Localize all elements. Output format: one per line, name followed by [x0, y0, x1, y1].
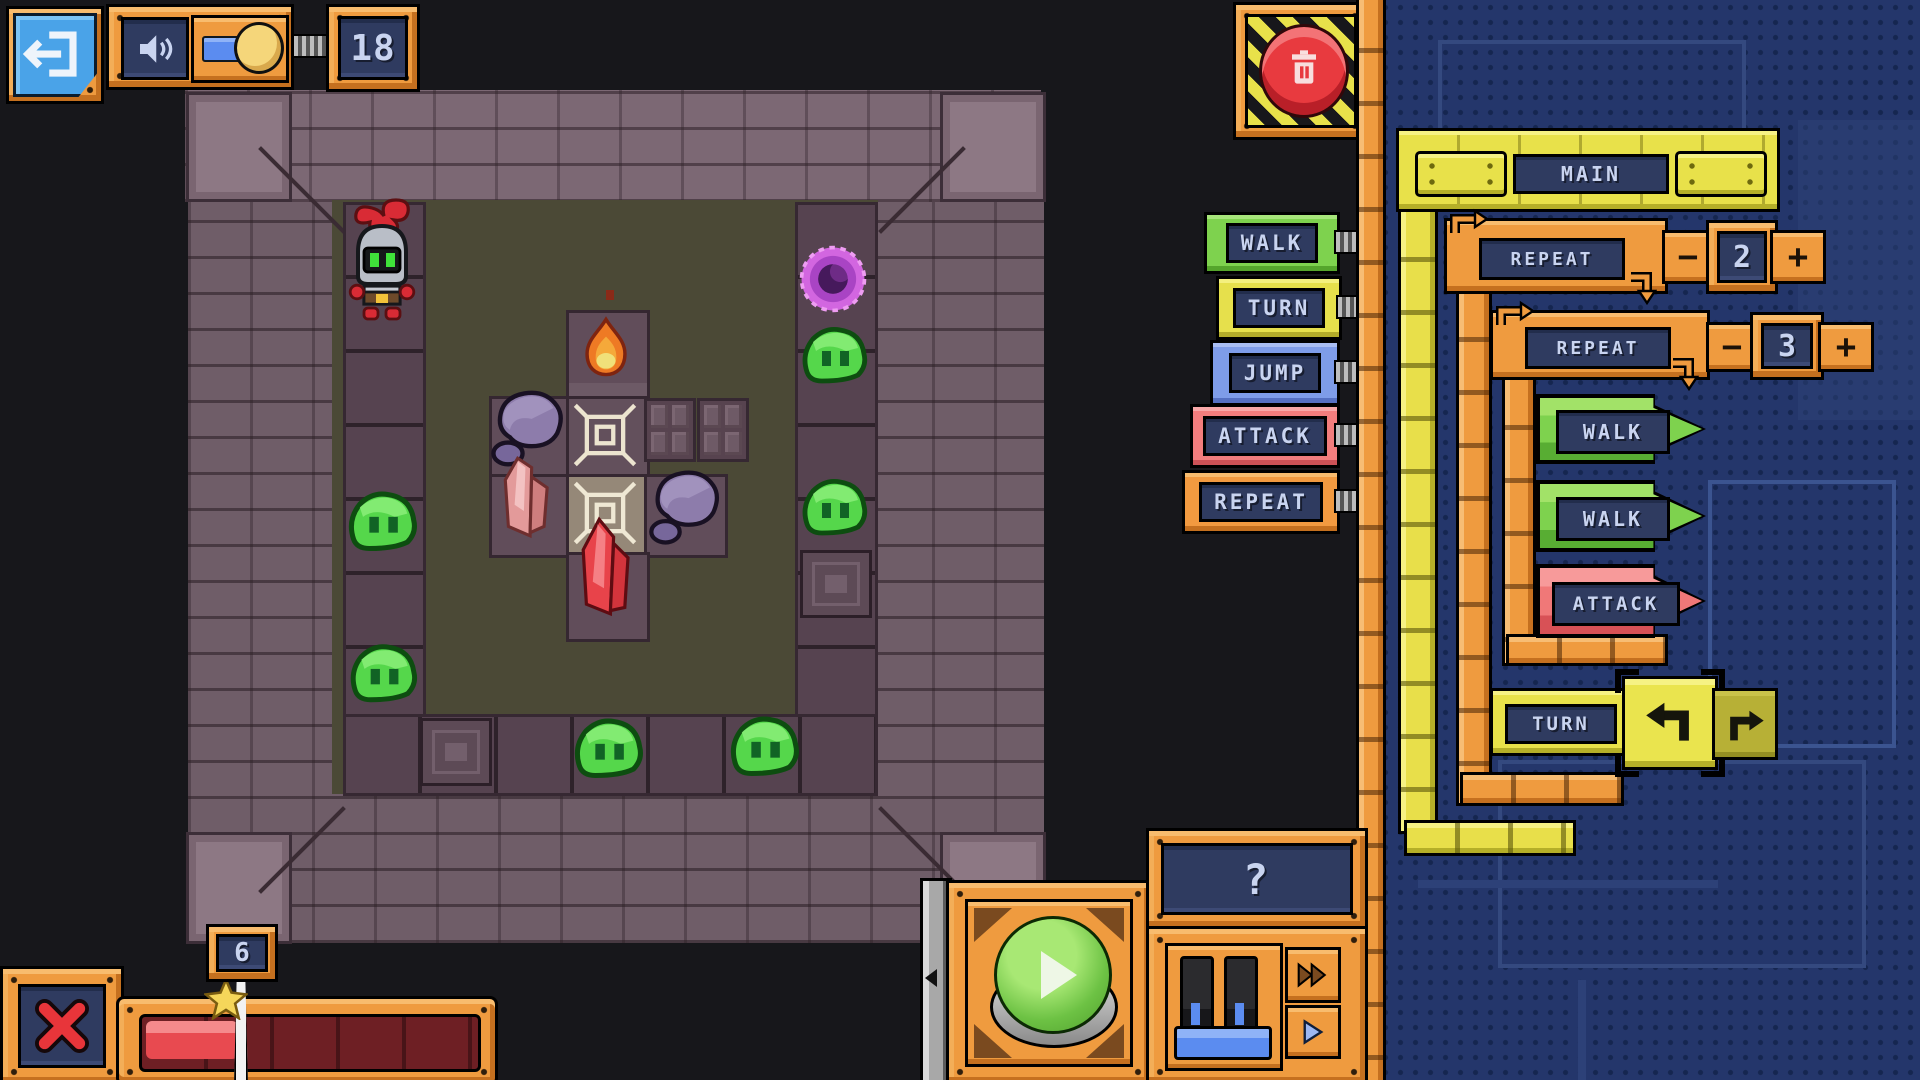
main-tab — [1675, 151, 1767, 197]
sound-panel — [106, 4, 294, 90]
speed-lever-base — [1174, 1026, 1272, 1060]
repeat-inner-plus-button[interactable]: + — [1818, 322, 1874, 372]
slime-sprite — [798, 320, 870, 388]
corner-pillar — [186, 92, 292, 202]
palette-repeat-label: REPEAT — [1199, 482, 1323, 522]
slime-sprite — [344, 486, 420, 554]
flame-icon — [580, 316, 632, 378]
main-block-pipe — [1398, 206, 1438, 834]
selection-bracket — [1615, 753, 1639, 777]
fast-forward-button[interactable] — [1285, 947, 1341, 1003]
selection-bracket — [1615, 669, 1639, 693]
repeat-outer-count: 2 — [1733, 240, 1751, 275]
main-tab — [1415, 151, 1507, 197]
turn-left-arrow-icon — [1642, 695, 1698, 747]
repeat-outer-block[interactable]: REPEAT — [1444, 218, 1668, 294]
platform-tile — [644, 398, 696, 462]
palette-walk-label: WALK — [1226, 223, 1319, 263]
exit-door-icon — [16, 16, 92, 92]
palette-repeat-button[interactable]: REPEAT — [1182, 470, 1340, 534]
main-block-pipe-end — [1404, 820, 1576, 856]
palette-turn-label: TURN — [1233, 288, 1326, 328]
speaker-icon — [121, 17, 189, 80]
repeat-outer-label: REPEAT — [1510, 249, 1593, 270]
loop-arrow-icon — [1449, 207, 1489, 235]
block-counter-panel: 18 — [326, 4, 420, 92]
turn-right-button[interactable] — [1712, 688, 1778, 760]
speed-lever[interactable] — [1224, 956, 1258, 1030]
portal-sprite — [796, 240, 870, 318]
program-walk-block-2[interactable]: WALK — [1536, 480, 1706, 552]
step-button[interactable] — [1285, 1005, 1341, 1059]
program-walk-block-1[interactable]: WALK — [1536, 394, 1706, 464]
trash-icon — [1284, 47, 1324, 91]
slime-sprite — [798, 472, 870, 540]
x-icon — [35, 999, 89, 1053]
progress-star-icon — [204, 978, 248, 1020]
hud-connector — [292, 34, 328, 58]
program-attack-block[interactable]: ATTACK — [1536, 564, 1706, 638]
ember — [606, 290, 614, 300]
speed-panel — [1146, 926, 1368, 1080]
play-icon — [1037, 949, 1081, 1001]
speed-lever[interactable] — [1180, 956, 1214, 1030]
marked-tile — [420, 718, 492, 786]
progress-marker-panel: 6 — [206, 924, 278, 982]
slime-sprite — [726, 710, 802, 780]
game-screen: 18 WALK TURN JUMP ATTACK REPEAT — [0, 0, 1920, 1080]
repeat-inner-pipe — [1502, 374, 1536, 666]
drawer-arrow-icon — [925, 969, 937, 987]
progress-fill — [146, 1021, 238, 1059]
exit-button[interactable] — [6, 6, 104, 104]
plus-icon: + — [1788, 237, 1808, 277]
repeat-outer-pipe — [1456, 286, 1492, 806]
run-panel — [946, 880, 1152, 1080]
trash-button[interactable] — [1259, 24, 1349, 118]
repeat-outer-plus-button[interactable]: + — [1770, 230, 1826, 284]
loop-arrow-icon — [1495, 299, 1535, 327]
minus-icon: − — [1722, 327, 1742, 367]
volume-knob[interactable] — [234, 22, 284, 74]
help-panel[interactable]: ? — [1146, 828, 1368, 930]
trash-drop-panel[interactable] — [1233, 2, 1369, 140]
palette-walk-button[interactable]: WALK — [1204, 212, 1340, 274]
loop-arrow-icon — [1669, 357, 1699, 393]
program-attack-label: ATTACK — [1573, 593, 1660, 615]
block-counter-value: 18 — [350, 28, 395, 69]
program-turn-label: TURN — [1532, 713, 1590, 735]
speed-lever-box — [1165, 943, 1283, 1071]
slime-sprite — [570, 712, 646, 782]
loop-arrow-icon — [1627, 271, 1657, 307]
corner-pillar — [940, 92, 1046, 202]
palette-jump-label: JUMP — [1229, 353, 1322, 393]
pink-crystal-sprite — [496, 448, 558, 546]
palette-attack-label: ATTACK — [1203, 416, 1327, 456]
help-label: ? — [1243, 855, 1271, 904]
red-crystal-sprite — [572, 514, 636, 624]
progress-panel — [116, 996, 498, 1080]
progress-track — [139, 1014, 481, 1072]
palette-attack-button[interactable]: ATTACK — [1190, 404, 1340, 468]
program-turn-block[interactable]: TURN — [1490, 688, 1628, 756]
repeat-inner-pipe-end — [1506, 634, 1668, 666]
knight-sprite — [340, 196, 424, 322]
repeat-inner-block[interactable]: REPEAT — [1490, 310, 1710, 380]
ornate-tile-motif — [572, 402, 638, 468]
platform-tile — [697, 398, 749, 462]
marked-tile — [800, 550, 872, 618]
step-play-icon — [1300, 1019, 1326, 1045]
slime-sprite — [346, 638, 420, 706]
turn-right-arrow-icon — [1723, 705, 1767, 745]
cancel-panel[interactable] — [0, 966, 124, 1080]
repeat-inner-counter: 3 — [1750, 312, 1824, 380]
volume-toggle[interactable] — [191, 15, 289, 83]
dungeon-top-wall — [185, 90, 1041, 202]
plus-icon: + — [1836, 327, 1856, 367]
rock-sprite — [646, 462, 724, 552]
repeat-outer-pipe-end — [1460, 772, 1624, 806]
minus-icon: − — [1678, 237, 1698, 277]
main-block-label: MAIN — [1561, 162, 1621, 186]
palette-jump-button[interactable]: JUMP — [1210, 340, 1340, 406]
repeat-inner-count: 3 — [1778, 329, 1796, 364]
play-button[interactable] — [994, 916, 1112, 1034]
progress-marker-value: 6 — [234, 938, 250, 968]
turn-left-button[interactable] — [1622, 676, 1718, 770]
fast-forward-icon — [1296, 962, 1330, 988]
program-walk-label: WALK — [1583, 507, 1643, 531]
palette-turn-button[interactable]: TURN — [1216, 276, 1342, 340]
repeat-outer-counter: 2 — [1706, 220, 1778, 294]
main-block[interactable]: MAIN — [1396, 128, 1780, 212]
repeat-inner-label: REPEAT — [1556, 338, 1639, 359]
program-walk-label: WALK — [1583, 420, 1643, 444]
